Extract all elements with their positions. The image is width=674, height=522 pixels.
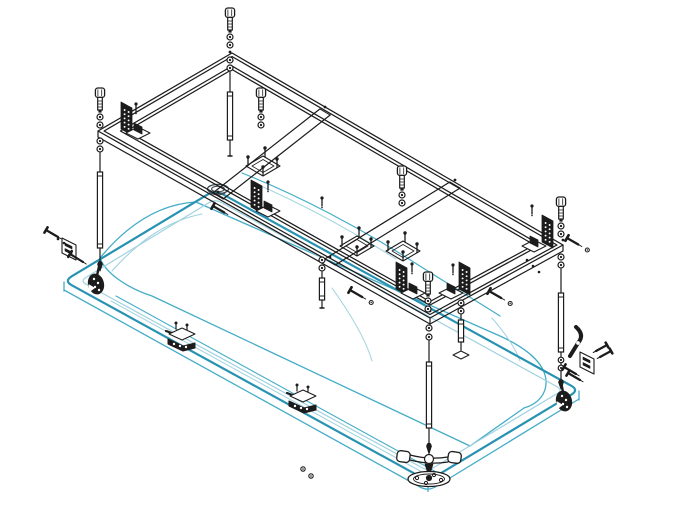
- assembly-diagram-page: [0, 0, 674, 522]
- frame-junction-dot: [324, 106, 327, 109]
- frame-junction-dot: [217, 191, 220, 194]
- frame-junction-dot: [229, 51, 232, 54]
- frame-junction-dot: [329, 256, 332, 259]
- washer-dot: [526, 259, 529, 262]
- frame-junction-dot: [562, 239, 565, 242]
- washer-dot: [538, 271, 541, 274]
- diagram-canvas: [0, 0, 674, 522]
- bathtub-frame-assembly-diagram: [0, 0, 674, 522]
- washer-dot: [532, 265, 535, 268]
- frame-junction-dot: [454, 179, 457, 182]
